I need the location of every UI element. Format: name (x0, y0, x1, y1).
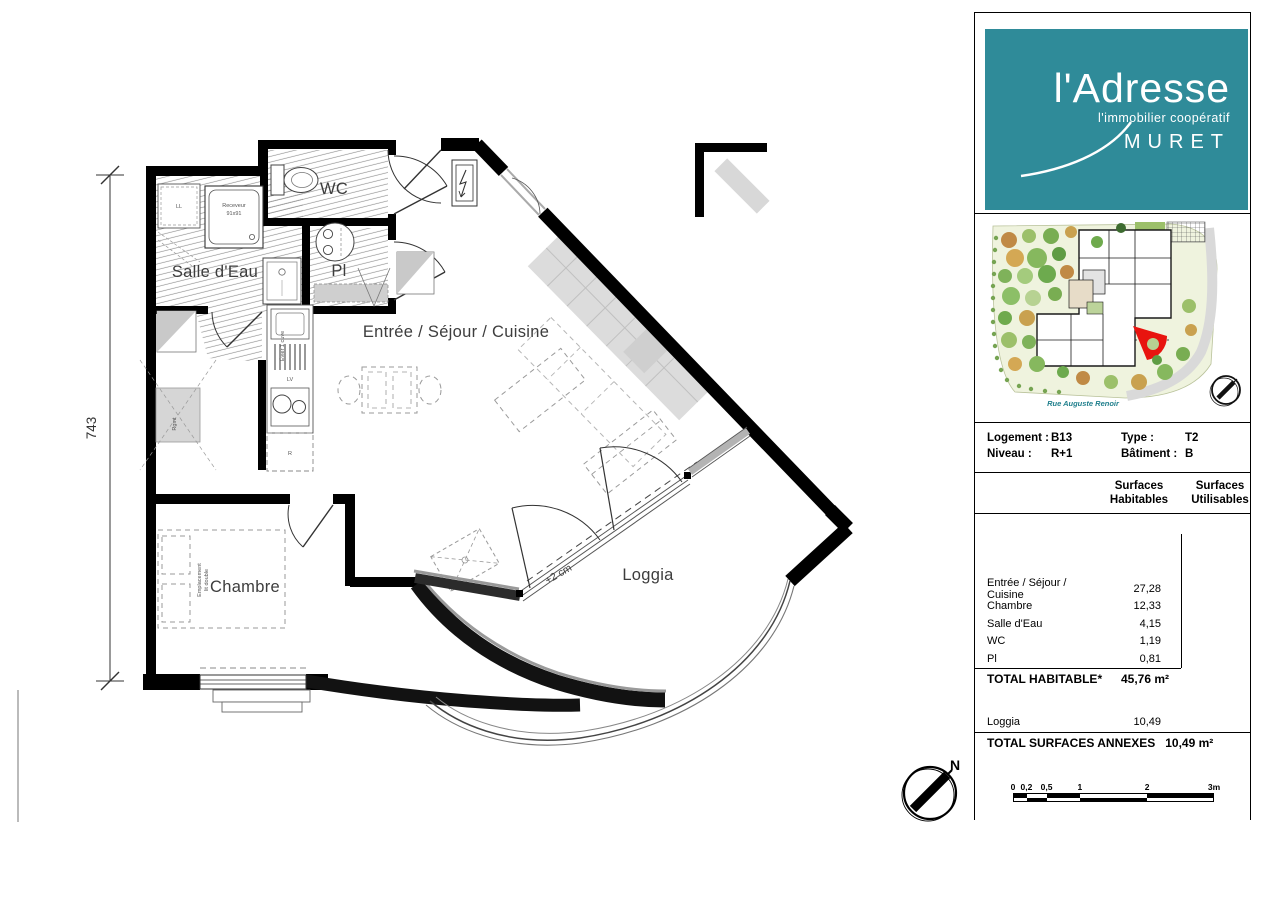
shower: Receveur 91x91 (205, 186, 263, 248)
table-row: Salle d'Eau 4,15 (975, 615, 1181, 633)
dining-table (338, 367, 441, 413)
north-compass: N (902, 757, 960, 821)
svg-text:91x91: 91x91 (227, 211, 242, 217)
kitchen-counter: Évier 1 cuve LV R (267, 305, 313, 471)
scale-bar: 0 0,2 0,5 1 2 3m (1013, 782, 1214, 802)
logo-section: l'Adresse l'immobilier coopératif MURET (975, 13, 1250, 214)
dimension-label: 743 (84, 417, 99, 440)
street-name: Rue Auguste Renoir (1047, 399, 1120, 408)
table-row: Pl 0,81 (975, 650, 1181, 668)
surfaces-header: Surfaces Habitables Surfaces Utilisables (975, 473, 1250, 514)
adjacent-unit-shading (518, 230, 716, 467)
loggia-glazing (414, 427, 750, 601)
rug (495, 348, 586, 431)
electrical-panel-icon (452, 160, 477, 206)
north-label: N (950, 757, 960, 773)
label-wc: WC (320, 180, 348, 198)
logo-swoosh-icon (1013, 120, 1163, 180)
column-divider (1181, 534, 1182, 668)
total-habitable-row: TOTAL HABITABLE* 45,76 m² (975, 668, 1181, 688)
storage-label: Rgmt (172, 417, 178, 431)
adjacent-unit-walls (695, 143, 770, 217)
table-row: WC 1,19 (975, 633, 1181, 651)
site-plan-section: Rue Auguste Renoir (975, 214, 1250, 423)
batiment-label: Bâtiment : (1121, 448, 1185, 460)
logement-value: B13 (1051, 432, 1121, 444)
label-pl: Pl (331, 262, 346, 280)
floor-plan-drawing: Receveur 91x91 LL (0, 0, 975, 903)
siteplan-compass-icon (1210, 376, 1240, 406)
bedroom-window (200, 668, 310, 712)
surfaces-table: Entrée / Séjour / Cuisine 27,28 Chambre … (975, 514, 1250, 829)
dishwasher-label: LV (287, 377, 294, 383)
shower-label: Receveur (222, 203, 246, 209)
parking-grid (1167, 222, 1205, 242)
table-row: Entrée / Séjour / Cuisine 27,28 (975, 580, 1181, 598)
type-label: Type : (1121, 432, 1185, 444)
niveau-label: Niveau : (987, 448, 1051, 460)
niveau-value: R+1 (1051, 448, 1121, 460)
col-utilisables: Surfaces Utilisables (1180, 479, 1260, 508)
washer-label: LL (176, 204, 182, 210)
brand-name: l'Adresse (1054, 68, 1230, 109)
vanity-unit (263, 258, 301, 304)
unit-info-section: Logement : B13 Type : T2 Niveau : R+1 Bâ… (975, 423, 1250, 473)
label-loggia-offset: +2 cm (543, 562, 574, 587)
table-row: Chambre 12,33 (975, 598, 1181, 616)
type-value: T2 (1185, 432, 1198, 444)
brand-logo: l'Adresse l'immobilier coopératif MURET (985, 29, 1248, 210)
label-chambre: Chambre (210, 578, 280, 596)
label-loggia: Loggia (622, 566, 674, 584)
label-salle-eau: Salle d'Eau (172, 263, 258, 281)
loggia-walls (306, 576, 794, 745)
floorplan-sheet: Receveur 91x91 LL (0, 0, 1275, 903)
loggia-row: Loggia 10,49 (975, 713, 1181, 730)
sofa (584, 410, 677, 494)
logement-label: Logement : (987, 432, 1051, 444)
fridge-label: R (288, 451, 292, 457)
toilet (271, 165, 318, 195)
dimension-743: 743 (84, 166, 124, 690)
total-annexes-row: TOTAL SURFACES ANNEXES 10,49 m² (975, 732, 1250, 752)
bed-label: Emplacement (197, 563, 203, 597)
site-plan-map: Rue Auguste Renoir (975, 214, 1250, 421)
label-sejour: Entrée / Séjour / Cuisine (363, 323, 549, 341)
col-habitables: Surfaces Habitables (1099, 479, 1179, 508)
batiment-value: B (1185, 448, 1193, 460)
info-panel: l'Adresse l'immobilier coopératif MURET (974, 12, 1251, 820)
